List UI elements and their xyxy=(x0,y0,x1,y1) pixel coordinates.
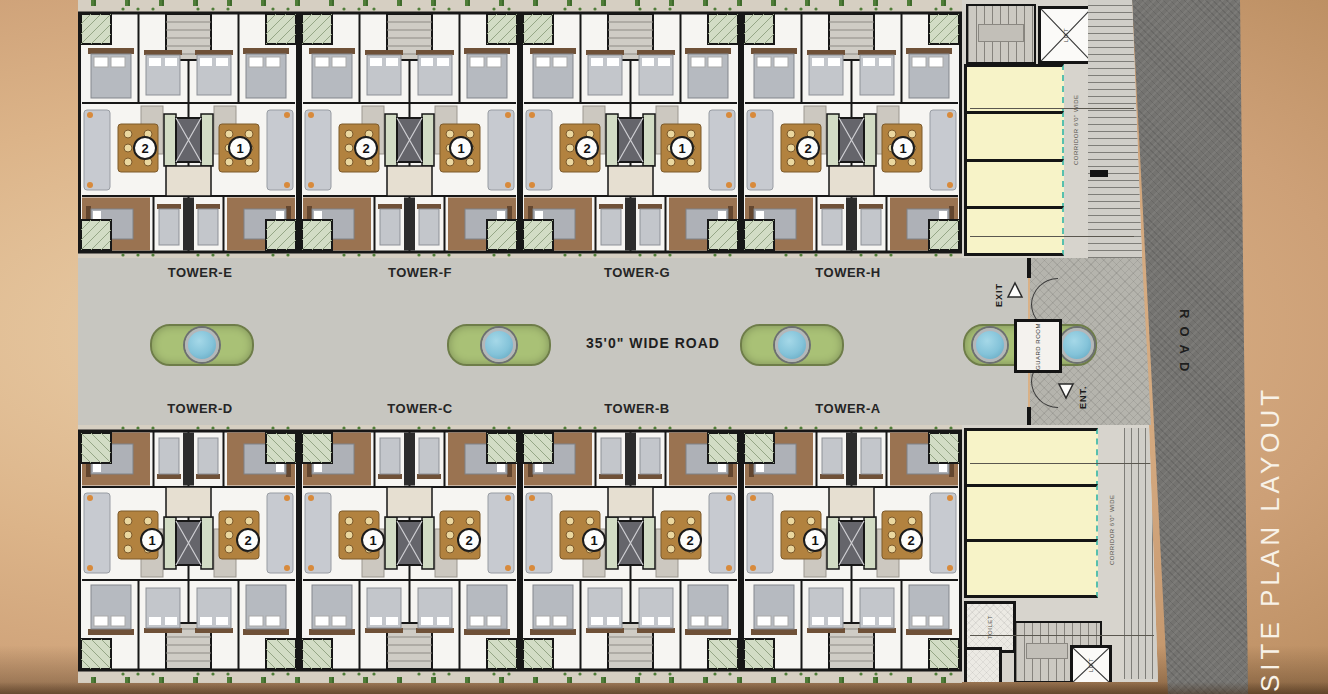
water-feature xyxy=(482,328,516,362)
road-width-label: 35'0" WIDE ROAD xyxy=(586,335,720,351)
guard-room: GUARD ROOM xyxy=(1014,319,1062,373)
entrance-label: ENT. xyxy=(1076,379,1090,415)
unit-number-badge: 2 xyxy=(236,528,260,552)
tower-label-f: TOWER-F xyxy=(350,265,490,280)
tower-h-plan xyxy=(741,6,962,258)
unit-number-badge: 2 xyxy=(575,136,599,160)
landscape-island xyxy=(447,324,551,366)
water-feature xyxy=(973,328,1007,362)
landscape-island xyxy=(150,324,254,366)
tower-label-d: TOWER-D xyxy=(130,401,270,416)
guard-room-label: GUARD ROOM xyxy=(1035,323,1042,370)
water-feature xyxy=(1060,328,1094,362)
unit-number-badge: 2 xyxy=(133,136,157,160)
boundary-wall xyxy=(1027,407,1031,425)
unit-number-badge: 1 xyxy=(803,528,827,552)
tower-label-c: TOWER-C xyxy=(350,401,490,416)
dimension-line xyxy=(970,635,1154,636)
tower-label-e: TOWER-E xyxy=(130,265,270,280)
parking-stall xyxy=(964,428,1098,487)
tower-c-plan xyxy=(299,425,520,677)
dimension-line xyxy=(970,108,1134,109)
parking-stalls xyxy=(964,64,1064,256)
parking-stalls xyxy=(964,428,1098,598)
parking-zone-top: LIFT CORRIDOR 6'0" WIDE xyxy=(962,0,1142,258)
site-title: SITE PLAN LAYOUT xyxy=(1248,372,1292,692)
unit-number-badge: 1 xyxy=(449,136,473,160)
tower-e-plan xyxy=(78,6,299,258)
parking-stall xyxy=(964,159,1064,209)
stair-landing xyxy=(1026,643,1068,659)
dimension-line xyxy=(970,236,1134,237)
lift-label: LIFT xyxy=(1074,647,1108,683)
tower-a-plan xyxy=(741,425,962,677)
tower-label-a: TOWER-A xyxy=(778,401,918,416)
parking-stall xyxy=(964,484,1098,543)
exit-arrow-icon xyxy=(1006,281,1024,299)
tower-label-b: TOWER-B xyxy=(567,401,707,416)
ground-shadow xyxy=(0,682,1328,694)
boundary-wall xyxy=(1027,258,1031,278)
staircase xyxy=(966,4,1036,64)
lift: LIFT xyxy=(1038,6,1094,64)
parking-stall xyxy=(964,206,1064,256)
utility-room xyxy=(964,647,1002,685)
unit-number-badge: 2 xyxy=(796,136,820,160)
exit-label: EXIT xyxy=(992,278,1006,312)
unit-number-badge: 2 xyxy=(354,136,378,160)
corridor-label: CORRIDOR 6'0" WIDE xyxy=(1064,70,1088,190)
unit-number-badge: 1 xyxy=(361,528,385,552)
tower-g-plan xyxy=(520,6,741,258)
water-feature xyxy=(775,328,809,362)
unit-number-badge: 1 xyxy=(670,136,694,160)
corridor-label: CORRIDOR 6'0" WIDE xyxy=(1100,465,1124,595)
wall-stub xyxy=(1090,170,1108,177)
unit-number-badge: 1 xyxy=(228,136,252,160)
tower-b-plan xyxy=(520,425,741,677)
unit-number-badge: 1 xyxy=(891,136,915,160)
parking-stall xyxy=(964,111,1064,161)
parking-stall xyxy=(964,64,1064,114)
unit-number-badge: 2 xyxy=(457,528,481,552)
tower-label-g: TOWER-G xyxy=(567,265,707,280)
road-band-label: ROAD xyxy=(1170,292,1198,396)
entrance-arrow-icon xyxy=(1057,382,1075,400)
stair-landing xyxy=(978,24,1024,42)
tower-label-h: TOWER-H xyxy=(778,265,918,280)
tower-d-plan xyxy=(78,425,299,677)
ramp xyxy=(1088,0,1142,258)
unit-number-badge: 1 xyxy=(140,528,164,552)
lift: LIFT xyxy=(1070,645,1112,685)
site-plan-canvas: ROAD 2 1 2 1 2 1 2 1 1 2 1 2 1 2 1 2 TOW… xyxy=(0,0,1328,694)
toilet-room: TOILET xyxy=(964,601,1016,653)
dimension-line xyxy=(970,463,1154,464)
tower-f-plan xyxy=(299,6,520,258)
parking-stall xyxy=(964,539,1098,598)
unit-number-badge: 2 xyxy=(678,528,702,552)
landscape-island xyxy=(740,324,844,366)
water-feature xyxy=(185,328,219,362)
lift-label: LIFT xyxy=(1040,10,1092,60)
unit-number-badge: 2 xyxy=(899,528,923,552)
central-road: TOWER-E TOWER-F TOWER-G TOWER-H TOWER-D … xyxy=(78,258,1028,425)
parking-zone-bottom: TOILET LIFT CORRIDOR 6'0" WIDE xyxy=(962,425,1162,682)
unit-number-badge: 1 xyxy=(582,528,606,552)
toilet-label: TOILET xyxy=(967,604,1013,650)
